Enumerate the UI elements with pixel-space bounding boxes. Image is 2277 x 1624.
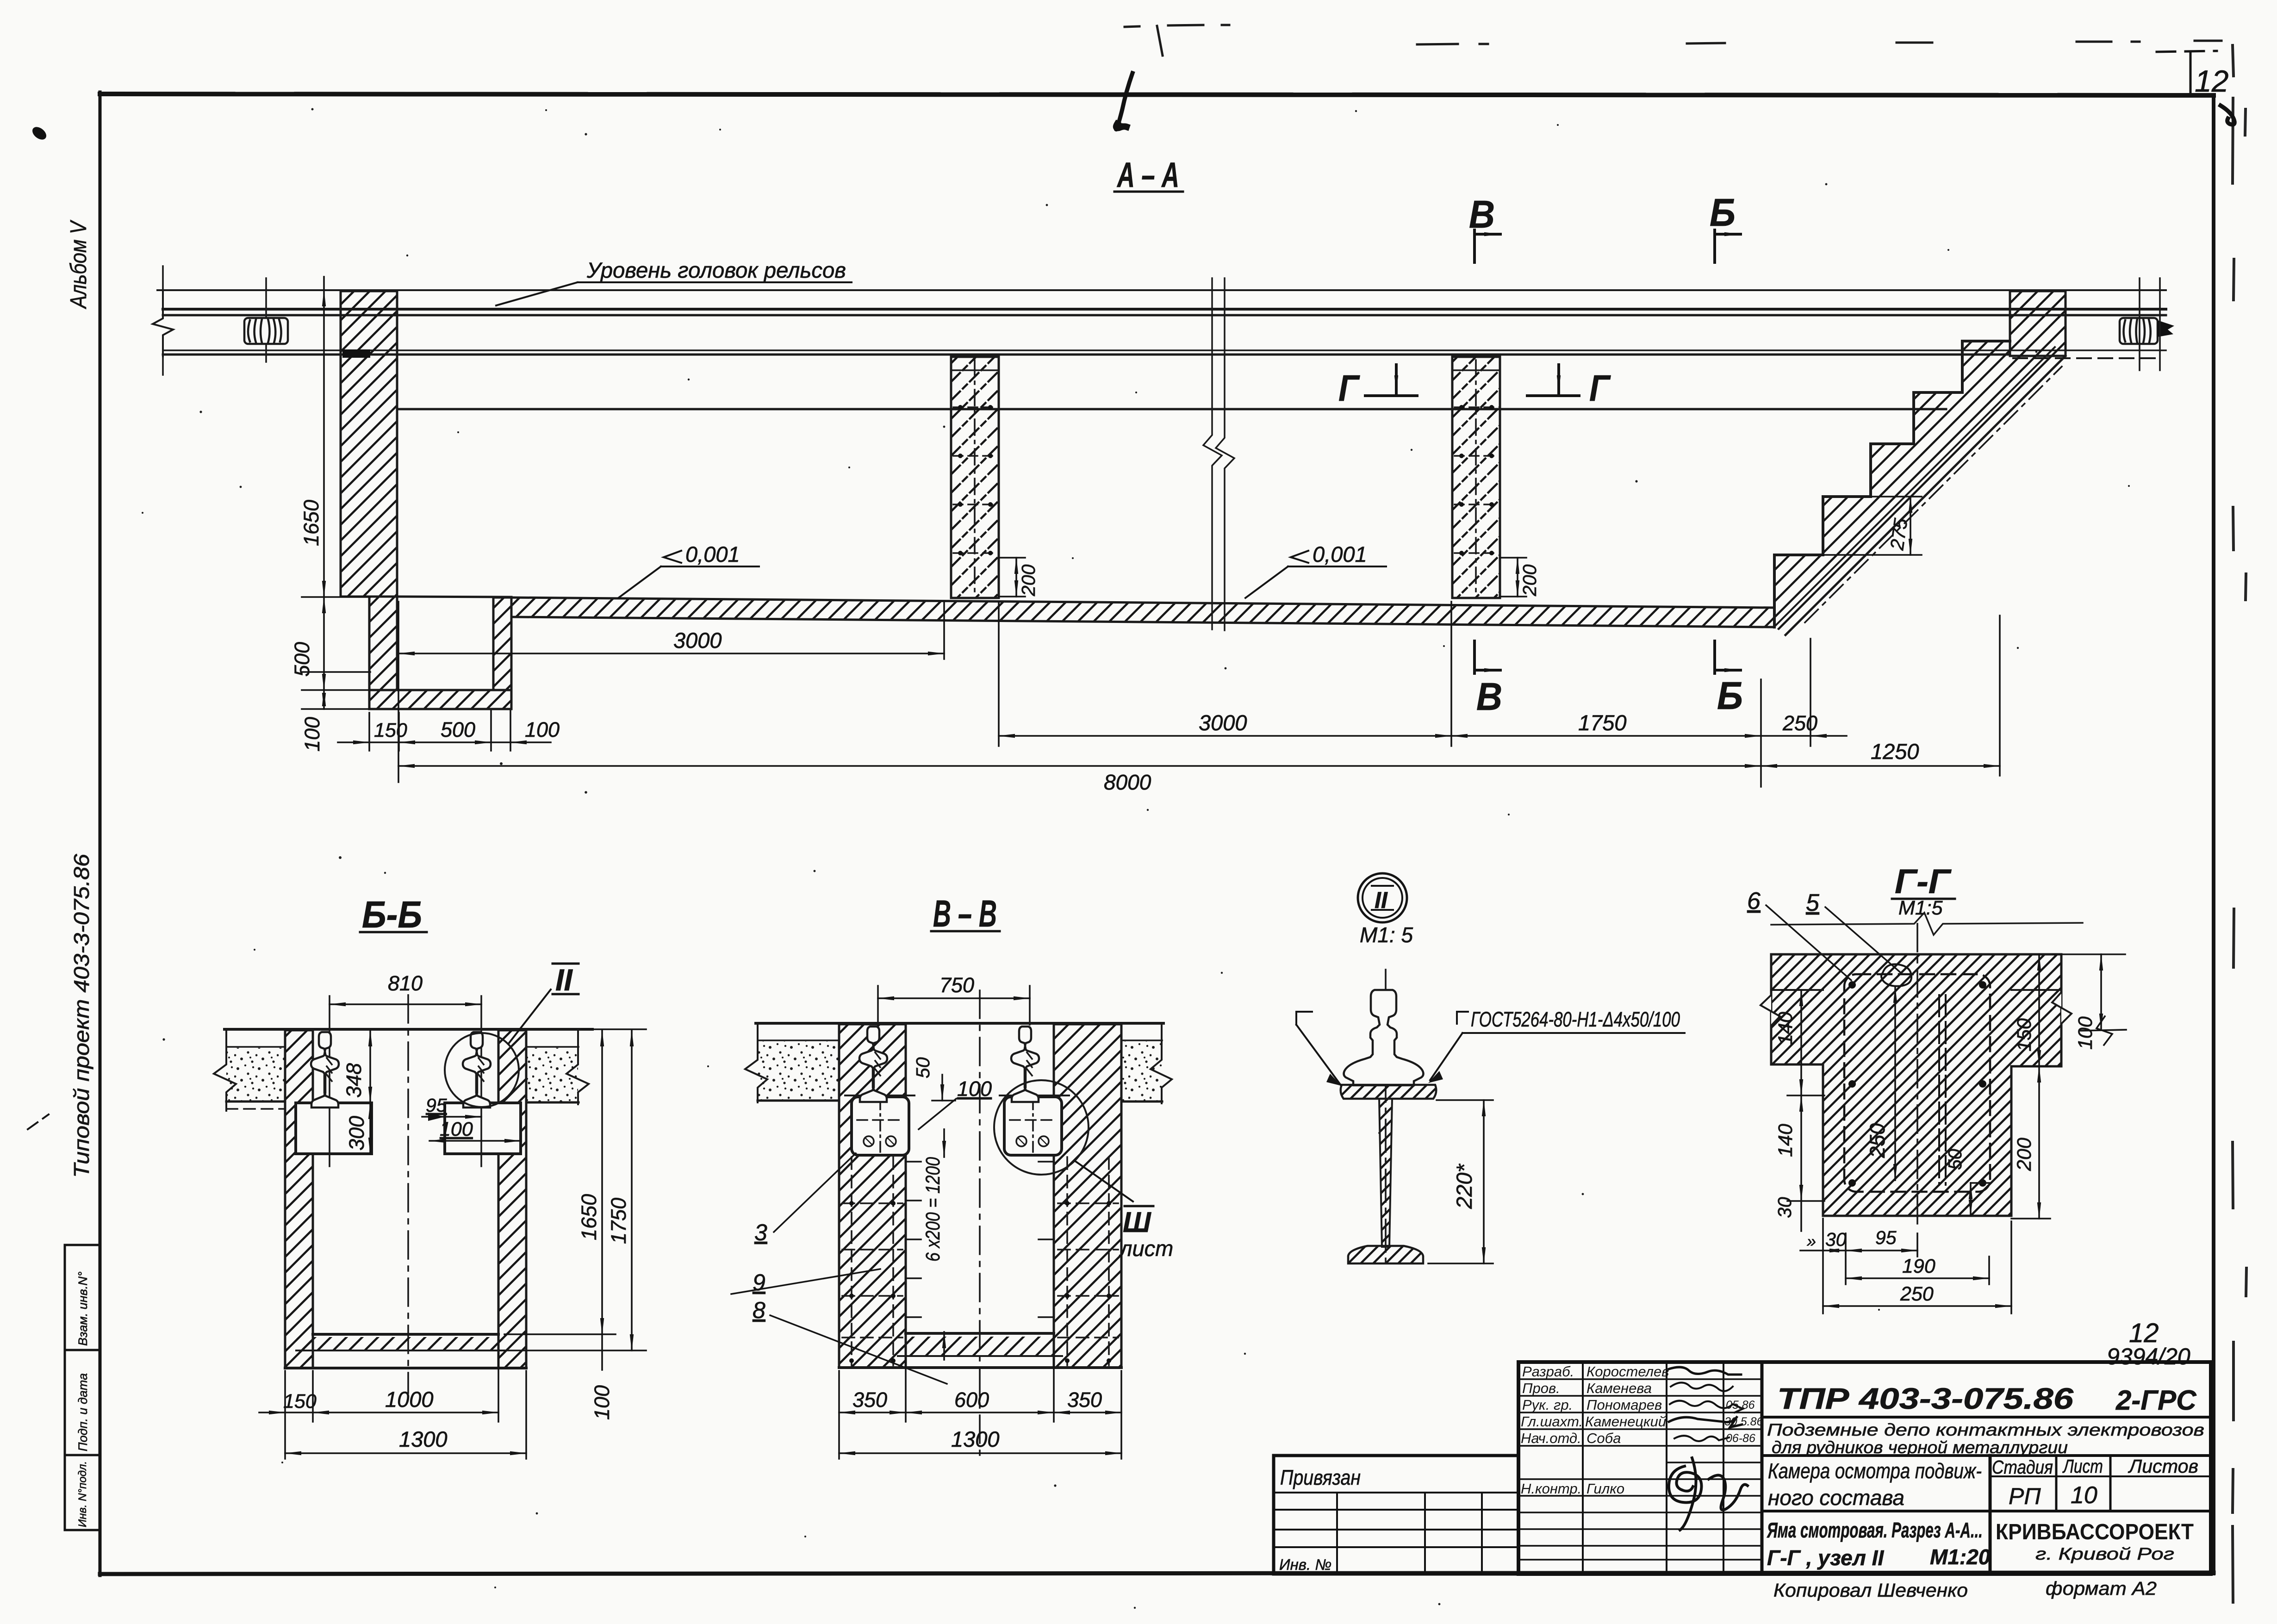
svg-text:06-86: 06-86 xyxy=(1726,1432,1755,1445)
svg-text:Пров.: Пров. xyxy=(1522,1380,1560,1396)
svg-text:2-ГРС: 2-ГРС xyxy=(2115,1385,2197,1416)
svg-text:348: 348 xyxy=(342,1063,366,1098)
svg-text:3000: 3000 xyxy=(673,628,722,653)
svg-text:Гилко: Гилко xyxy=(1586,1481,1624,1497)
svg-text:30: 30 xyxy=(1825,1229,1847,1250)
svg-text:лист: лист xyxy=(1119,1236,1173,1261)
svg-text:Соба: Соба xyxy=(1586,1430,1621,1446)
svg-text:30: 30 xyxy=(1774,1197,1795,1218)
svg-text:6 х200 = 1200: 6 х200 = 1200 xyxy=(922,1157,944,1262)
svg-text:Привязан: Привязан xyxy=(1280,1466,1361,1489)
svg-text:3: 3 xyxy=(754,1220,767,1245)
svg-text:г. Кривой Рог: г. Кривой Рог xyxy=(2035,1544,2174,1563)
svg-text:50: 50 xyxy=(1944,1149,1966,1170)
svg-text:Гл.шахт.: Гл.шахт. xyxy=(1521,1413,1583,1430)
svg-text:Разраб.: Разраб. xyxy=(1522,1363,1574,1380)
svg-text:1750: 1750 xyxy=(1578,710,1627,735)
svg-text:1650: 1650 xyxy=(577,1194,601,1240)
svg-text:600: 600 xyxy=(954,1388,989,1412)
svg-text:Лист: Лист xyxy=(2062,1456,2103,1477)
svg-text:190: 190 xyxy=(1902,1255,1935,1277)
svg-text:Подп. и дата: Подп. и дата xyxy=(76,1373,90,1451)
svg-text:Б: Б xyxy=(1717,674,1743,717)
svg-text:ТПР 403-3-075.86: ТПР 403-3-075.86 xyxy=(1777,1382,2073,1415)
svg-text:30.5.86: 30.5.86 xyxy=(1724,1415,1763,1428)
svg-text:8000: 8000 xyxy=(1104,770,1151,794)
svg-text:1750: 1750 xyxy=(607,1198,630,1244)
svg-text:750: 750 xyxy=(939,973,974,997)
svg-text:100: 100 xyxy=(590,1385,614,1420)
svg-text:Подземные депо контактных э: Подземные депо контактных электровозов xyxy=(1767,1420,2204,1439)
svg-text:0,001: 0,001 xyxy=(1313,542,1367,566)
svg-text:140: 140 xyxy=(1774,1124,1797,1157)
svg-text:150: 150 xyxy=(283,1390,317,1412)
svg-text:95: 95 xyxy=(426,1095,447,1116)
svg-text:100: 100 xyxy=(957,1077,992,1101)
svg-text:12: 12 xyxy=(2195,64,2228,98)
svg-text:9: 9 xyxy=(753,1269,765,1295)
svg-text:формат А2: формат А2 xyxy=(2046,1578,2157,1599)
svg-text:Пономарев: Пономарев xyxy=(1586,1397,1662,1413)
svg-text:5: 5 xyxy=(1806,890,1820,916)
svg-text:1650: 1650 xyxy=(299,500,323,546)
svg-text:Листов: Листов xyxy=(2128,1456,2198,1477)
svg-text:9394/20: 9394/20 xyxy=(2107,1344,2190,1369)
svg-text:350: 350 xyxy=(1067,1388,1102,1412)
svg-text:200: 200 xyxy=(1519,564,1540,597)
svg-text:250: 250 xyxy=(1782,711,1817,735)
svg-text:1000: 1000 xyxy=(385,1387,434,1412)
svg-text:3000: 3000 xyxy=(1199,710,1247,735)
svg-text:Инв. N°подл.: Инв. N°подл. xyxy=(76,1461,89,1527)
svg-text:ГОСТ5264-80-Н1-Δ4х50/100: ГОСТ5264-80-Н1-Δ4х50/100 xyxy=(1471,1008,1680,1031)
svg-text:Каменецкий: Каменецкий xyxy=(1585,1413,1666,1430)
svg-text:Яма смотровая. Разрез А-А...: Яма смотровая. Разрез А-А... xyxy=(1767,1518,1983,1542)
svg-text:Г: Г xyxy=(1338,367,1360,409)
svg-text:Г-Г: Г-Г xyxy=(1895,862,1952,901)
svg-text:Г-Г , узел II: Г-Г , узел II xyxy=(1767,1546,1884,1570)
svg-text:Взам. инв.N°: Взам. инв.N° xyxy=(76,1271,90,1346)
svg-text:275: 275 xyxy=(1886,517,1911,552)
svg-text:250: 250 xyxy=(1866,1123,1889,1158)
svg-text:В: В xyxy=(1476,675,1502,718)
svg-text:810: 810 xyxy=(388,971,423,995)
svg-text:1250: 1250 xyxy=(1871,739,1919,764)
svg-text:100: 100 xyxy=(525,718,560,741)
svg-text:1300: 1300 xyxy=(399,1427,448,1451)
svg-text:Копировал Шевченко: Копировал Шевченко xyxy=(1773,1580,1968,1601)
svg-text:Уровень головок рельсов: Уровень головок рельсов xyxy=(586,258,846,282)
svg-text:Каменева: Каменева xyxy=(1586,1380,1652,1396)
svg-text:Альбом V: Альбом V xyxy=(66,219,91,309)
svg-text:100: 100 xyxy=(2074,1016,2097,1050)
svg-text:для рудников черной металлу: для рудников черной металлургии xyxy=(1772,1438,2068,1457)
svg-text:М1: 5: М1: 5 xyxy=(1360,923,1413,947)
svg-text:150: 150 xyxy=(2013,1018,2035,1052)
svg-text:1300: 1300 xyxy=(951,1427,1000,1451)
svg-text:100: 100 xyxy=(300,717,324,752)
svg-text:150: 150 xyxy=(374,719,407,741)
svg-text:Стадия: Стадия xyxy=(1992,1456,2053,1478)
svg-text:250: 250 xyxy=(1900,1283,1934,1305)
svg-text:100: 100 xyxy=(440,1118,473,1140)
svg-text:Рук. гр.: Рук. гр. xyxy=(1522,1397,1573,1413)
svg-text:Типовой проект 403-3-075.86: Типовой проект 403-3-075.86 xyxy=(69,854,93,1178)
svg-text:Ш: Ш xyxy=(1123,1207,1151,1238)
svg-text:А – А: А – А xyxy=(1117,156,1179,195)
svg-text:Камера осмотра подвиж-: Камера осмотра подвиж- xyxy=(1768,1459,1982,1483)
svg-text:8: 8 xyxy=(753,1297,765,1323)
svg-text:95: 95 xyxy=(1875,1227,1897,1248)
svg-text:КРИВБАССОРОЕКТ: КРИВБАССОРОЕКТ xyxy=(1996,1520,2194,1544)
svg-text:В – В: В – В xyxy=(933,893,997,935)
svg-text:300: 300 xyxy=(345,1116,368,1151)
svg-text:10: 10 xyxy=(2071,1482,2097,1509)
svg-text:В: В xyxy=(1469,193,1495,236)
svg-text:М1:20: М1:20 xyxy=(1930,1545,1991,1569)
svg-text:05.86: 05.86 xyxy=(1726,1399,1755,1412)
svg-text:Г: Г xyxy=(1589,367,1611,409)
svg-text:350: 350 xyxy=(852,1388,887,1412)
svg-text:ного состава: ного состава xyxy=(1768,1486,1904,1510)
svg-text:Н.контр.: Н.контр. xyxy=(1521,1481,1581,1497)
svg-text:»: » xyxy=(1807,1232,1816,1251)
svg-text:220*: 220* xyxy=(1452,1164,1476,1209)
svg-text:6: 6 xyxy=(1747,888,1761,915)
svg-text:200: 200 xyxy=(2013,1138,2035,1171)
svg-text:РП: РП xyxy=(2009,1483,2041,1509)
svg-text:0,001: 0,001 xyxy=(685,542,740,566)
svg-text:140: 140 xyxy=(1774,1012,1797,1045)
svg-text:Б: Б xyxy=(1710,191,1736,234)
svg-text:Инв. №: Инв. № xyxy=(1279,1556,1331,1573)
svg-text:Нач.отд.: Нач.отд. xyxy=(1521,1430,1581,1446)
svg-text:500: 500 xyxy=(441,718,475,741)
svg-text:50: 50 xyxy=(912,1057,933,1078)
svg-text:200: 200 xyxy=(1018,564,1039,597)
svg-text:II: II xyxy=(555,963,573,997)
svg-text:Б-Б: Б-Б xyxy=(362,894,422,936)
svg-text:Коростелев: Коростелев xyxy=(1586,1363,1669,1380)
